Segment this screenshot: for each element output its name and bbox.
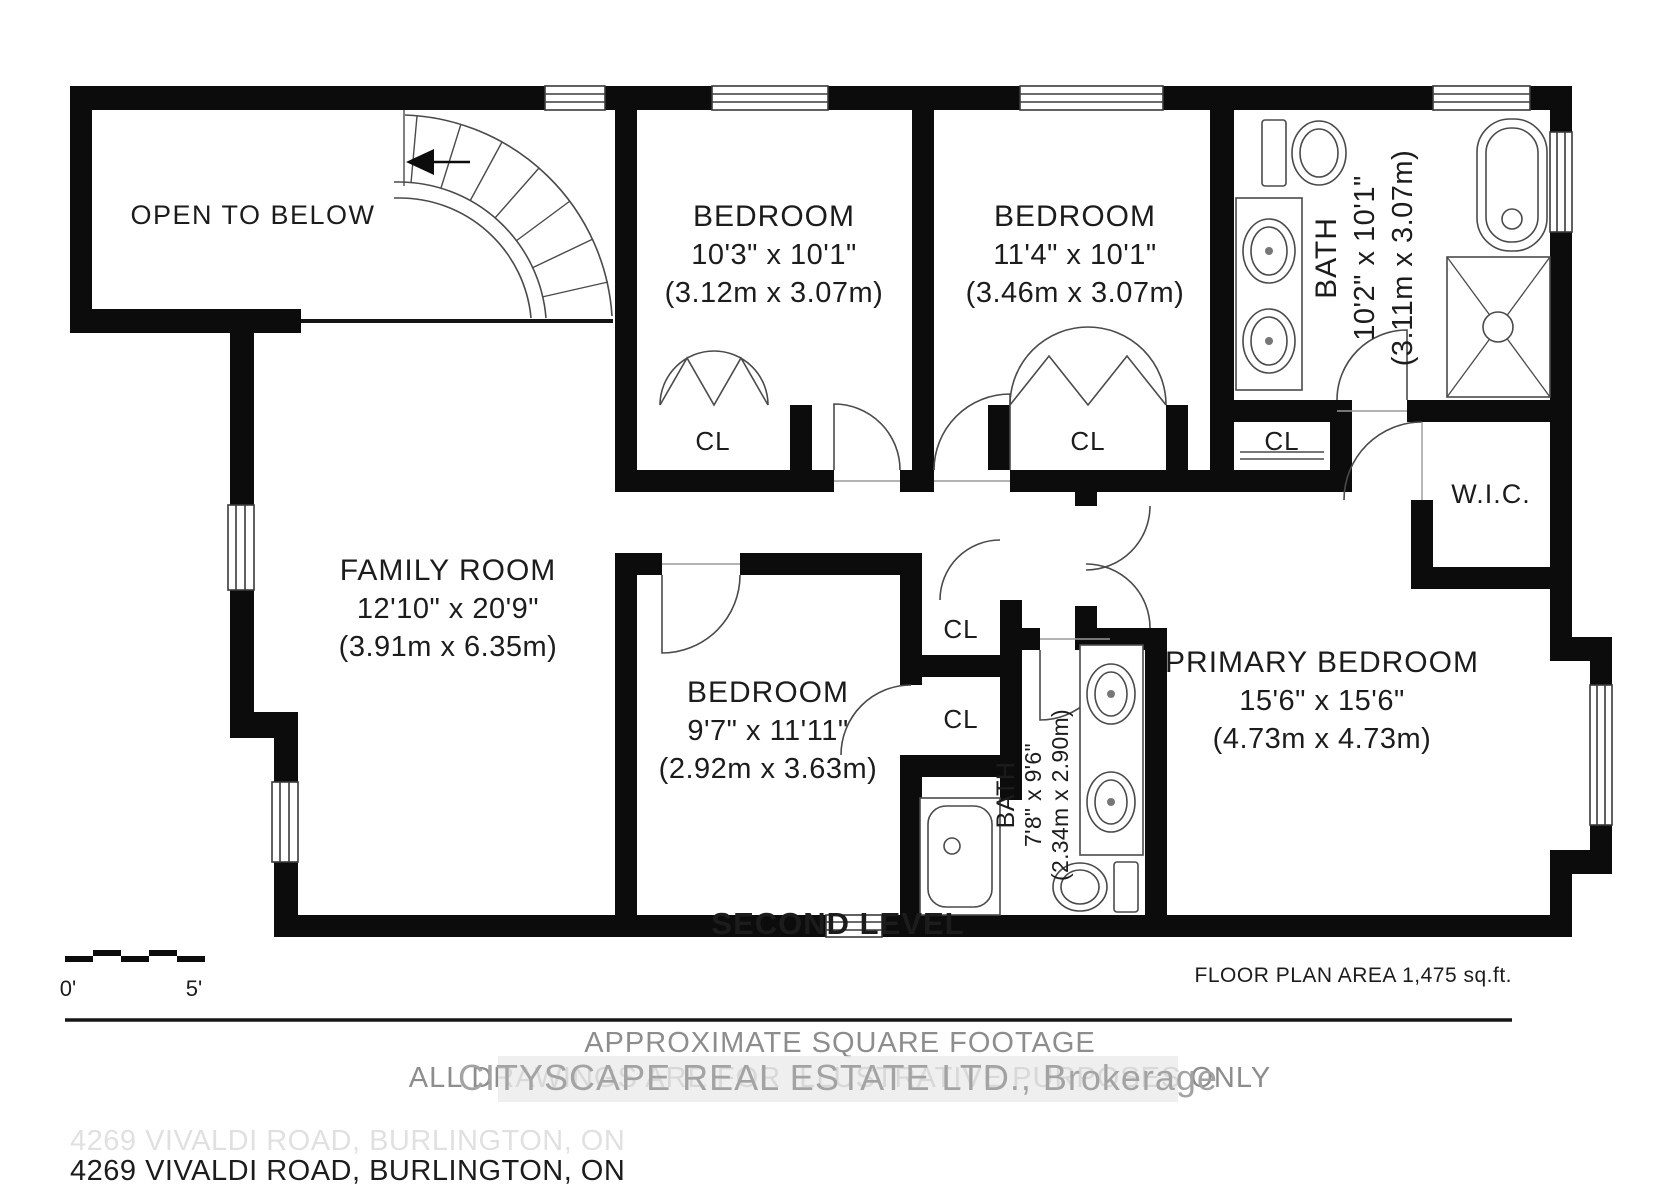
- sink-drain: [1107, 690, 1115, 698]
- window-top-3: [1020, 86, 1163, 110]
- room-bedroom1-label: BEDROOM 10'3" x 10'1" (3.12m x 3.07m): [665, 200, 884, 309]
- sink-drain: [1265, 247, 1273, 255]
- room-dims-imperial: 10'2" x 10'1": [1349, 175, 1381, 341]
- floor-plan-area: FLOOR PLAN AREA 1,475 sq.ft.: [1195, 964, 1512, 987]
- shower-control: [944, 838, 960, 854]
- scale-bar-segments: [65, 950, 205, 962]
- bifold-doors-closet2: [1010, 327, 1166, 405]
- shower-ensuite: [920, 798, 1000, 915]
- brokerage-watermark: CITYSCAPE REAL ESTATE LTD., Brokerage: [458, 1056, 1218, 1102]
- window-top-1: [545, 86, 605, 110]
- room-bedroom3-label: BEDROOM 9'7" x 11'11" (2.92m x 3.63m): [659, 676, 878, 785]
- closet-label-4: CL: [943, 614, 978, 644]
- door-arc-closet-hall: [940, 540, 1000, 600]
- room-dims-metric: (3.11m x 3.07m): [1387, 150, 1419, 366]
- toilet-main-bath: [1262, 120, 1346, 186]
- stair-arcs: [390, 115, 612, 318]
- room-dims-metric: (3.12m x 3.07m): [665, 277, 884, 309]
- footer: SECOND LEVEL 0' 5' FLOOR PLAN AREA 1,475…: [60, 906, 1512, 1187]
- door-arc-closet-bedroom3: [841, 685, 911, 755]
- room-name: BEDROOM: [693, 200, 855, 233]
- address-ghost: 4269 VIVALDI ROAD, BURLINGTON, ON: [70, 1125, 625, 1157]
- room-dims-imperial: 15'6" x 15'6": [1239, 685, 1405, 717]
- room-dims-metric: (4.73m x 4.73m): [1213, 723, 1432, 755]
- tub-drain: [1502, 209, 1522, 229]
- window-top-4: [1433, 86, 1530, 110]
- scale-zero-label: 0': [60, 976, 76, 1001]
- sink-drain: [1265, 337, 1273, 345]
- bifold-doors-closet1: [660, 351, 768, 405]
- closet-label-1: CL: [695, 426, 730, 456]
- room-dims-metric: (2.92m x 3.63m): [659, 753, 878, 785]
- window-frame: [1433, 86, 1530, 110]
- window-frame: [1550, 132, 1572, 232]
- window-frame: [228, 505, 254, 590]
- room-labels: OPEN TO BELOW BEDROOM 10'3" x 10'1" (3.1…: [130, 150, 1530, 881]
- bathtub: [1477, 119, 1547, 251]
- room-name: FAMILY ROOM: [340, 554, 557, 587]
- window-bay-primary: [1590, 685, 1612, 825]
- vanity-main-bath: [1236, 198, 1302, 390]
- watermark-text: CITYSCAPE REAL ESTATE LTD., Brokerage: [458, 1057, 1218, 1098]
- window-right-bath: [1550, 132, 1572, 232]
- window-left-1: [228, 505, 254, 590]
- toilet-tank: [1262, 120, 1286, 186]
- scale-five-label: 5': [186, 976, 202, 1001]
- room-dims-imperial: 9'7" x 11'11": [687, 715, 848, 747]
- door-arc-bedroom3: [662, 575, 740, 653]
- shower-stall-inner: [928, 806, 992, 907]
- shower-main-bath: [1447, 257, 1550, 397]
- room-dims-imperial: 7'8" x 9'6": [1020, 743, 1046, 847]
- footer-approx: APPROXIMATE SQUARE FOOTAGE: [584, 1027, 1096, 1059]
- room-dims-imperial: 10'3" x 10'1": [691, 239, 857, 271]
- closet-label-2: CL: [1070, 426, 1105, 456]
- window-frame: [712, 86, 828, 110]
- toilet-tank: [1114, 862, 1138, 912]
- floor-plan-page: OPEN TO BELOW BEDROOM 10'3" x 10'1" (3.1…: [0, 0, 1680, 1187]
- window-top-2: [712, 86, 828, 110]
- room-dims-imperial: 12'10" x 20'9": [357, 593, 539, 625]
- room-name: BEDROOM: [687, 676, 849, 709]
- address: 4269 VIVALDI ROAD, BURLINGTON, ON: [70, 1155, 625, 1187]
- closet-label-3: CL: [1264, 426, 1299, 456]
- wic-label: W.I.C.: [1451, 479, 1531, 509]
- shower-drain: [1483, 312, 1513, 342]
- toilet-bowl-inner: [1300, 129, 1338, 177]
- stair-direction-arrow: [406, 149, 434, 175]
- room-dims-metric: (2.34m x 2.90m): [1047, 709, 1073, 881]
- door-arc-bedroom1: [834, 404, 900, 470]
- room-dims-imperial: 11'4" x 10'1": [993, 239, 1156, 271]
- room-name: BATH: [992, 762, 1020, 829]
- room-primary-label: PRIMARY BEDROOM 15'6" x 15'6" (4.73m x 4…: [1165, 646, 1479, 755]
- room-family-label: FAMILY ROOM 12'10" x 20'9" (3.91m x 6.35…: [339, 554, 558, 663]
- sink-drain: [1107, 798, 1115, 806]
- window-frame: [1590, 685, 1612, 825]
- window-frame: [545, 86, 605, 110]
- vanity-ensuite: [1080, 645, 1143, 855]
- closet-label-5: CL: [943, 704, 978, 734]
- room-bedroom2-label: BEDROOM 11'4" x 10'1" (3.46m x 3.07m): [966, 200, 1185, 309]
- window-frame: [272, 782, 298, 862]
- level-title: SECOND LEVEL: [711, 906, 964, 941]
- door-arc-wic: [1344, 422, 1422, 500]
- door-arc-primary-leaf1: [1086, 506, 1150, 570]
- door-thresholds: [662, 411, 1422, 639]
- room-name: BATH: [1310, 217, 1343, 299]
- room-dims-metric: (3.46m x 3.07m): [966, 277, 1185, 309]
- room-name: PRIMARY BEDROOM: [1165, 646, 1479, 679]
- room-dims-metric: (3.91m x 6.35m): [339, 631, 558, 663]
- staircase: [390, 110, 612, 318]
- scale-bar: 0' 5': [60, 950, 205, 1001]
- window-frame: [1020, 86, 1163, 110]
- room-name: BEDROOM: [994, 200, 1156, 233]
- window-left-2: [272, 782, 298, 862]
- open-to-below-label: OPEN TO BELOW: [130, 200, 375, 230]
- floor-plan-svg: OPEN TO BELOW BEDROOM 10'3" x 10'1" (3.1…: [0, 0, 1680, 1187]
